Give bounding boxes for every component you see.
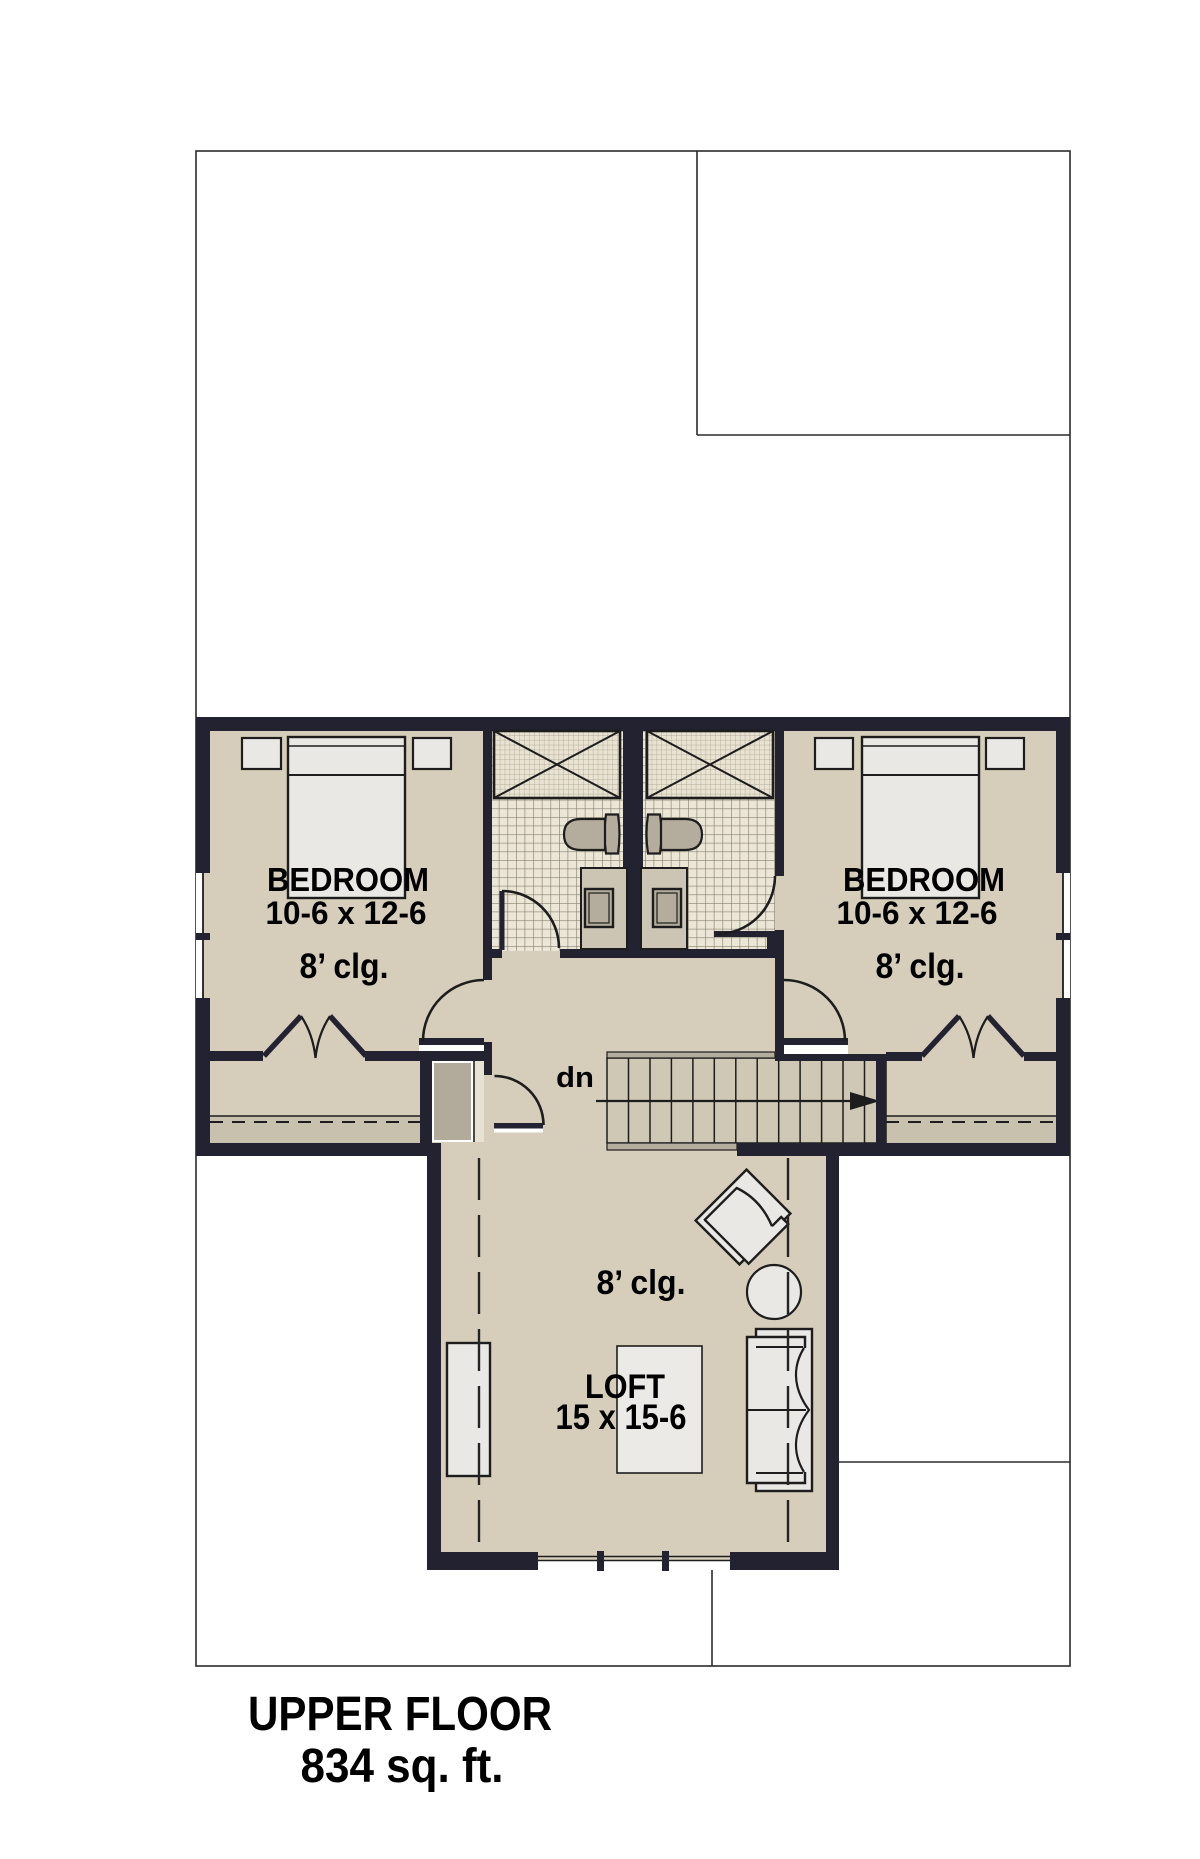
svg-text:BEDROOM: BEDROOM <box>267 861 429 898</box>
svg-text:UPPER FLOOR: UPPER FLOOR <box>248 1688 552 1741</box>
svg-text:10-6 x 12-6: 10-6 x 12-6 <box>837 895 998 931</box>
svg-text:10-6 x 12-6: 10-6 x 12-6 <box>266 895 427 931</box>
svg-text:dn: dn <box>556 1062 594 1094</box>
svg-text:8’ clg.: 8’ clg. <box>597 1264 686 1302</box>
svg-text:834 sq. ft.: 834 sq. ft. <box>301 1740 504 1793</box>
svg-text:8’ clg.: 8’ clg. <box>876 947 965 986</box>
svg-text:BEDROOM: BEDROOM <box>843 861 1005 898</box>
svg-text:15 x 15-6: 15 x 15-6 <box>556 1398 687 1437</box>
svg-text:8’ clg.: 8’ clg. <box>300 947 389 986</box>
